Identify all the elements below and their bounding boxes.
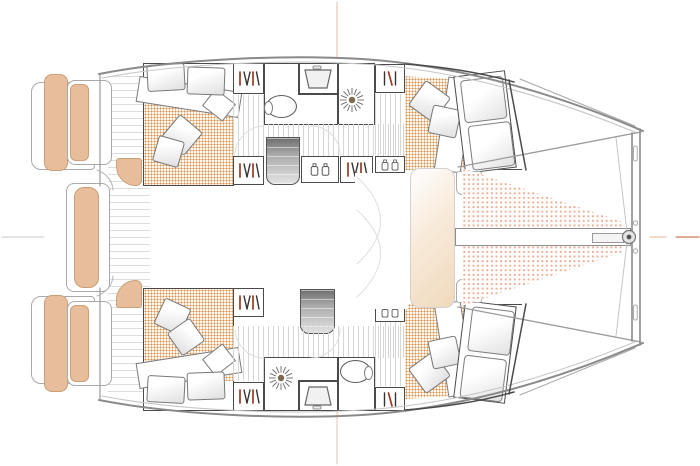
- toilet-icon: [266, 95, 297, 118]
- corridor-floor: [233, 95, 264, 124]
- cockpit-center-bench-cushion: [74, 187, 99, 288]
- clothes-hanger-icon: [382, 70, 399, 87]
- trampoline-panel: [462, 168, 622, 229]
- pillow: [187, 371, 226, 400]
- wardrobe: [233, 156, 264, 185]
- pillow: [146, 375, 185, 404]
- transom-bench-cushion: [44, 74, 68, 171]
- toiletry-jar-icon: [321, 163, 330, 176]
- head-wall: [298, 380, 300, 411]
- transom-bench-cushion: [70, 305, 89, 382]
- wardrobe: [233, 288, 264, 317]
- clothes-hanger-icon: [237, 70, 261, 87]
- toilet-cistern: [364, 366, 373, 380]
- head-wall: [337, 357, 339, 411]
- companionway-steps: [266, 137, 300, 185]
- head-wall: [298, 93, 338, 95]
- berth-cushion: [459, 355, 507, 403]
- corridor-floor: [233, 352, 264, 381]
- berth-cushion: [467, 306, 515, 356]
- toilet-icon: [340, 360, 371, 383]
- catamaran-deck-plan: [0, 0, 700, 466]
- toiletry-jar-icon: [310, 163, 319, 176]
- toilet-cistern: [264, 101, 273, 115]
- clothes-hanger-icon: [382, 391, 399, 408]
- sink-basin-icon: [301, 65, 335, 92]
- locker: [301, 156, 339, 183]
- corridor-floor: [375, 322, 405, 386]
- shower-drain-rose-icon: [335, 83, 369, 117]
- head-wall: [298, 380, 338, 382]
- bowsprit-slider: [592, 233, 624, 243]
- clothes-hanger-icon: [237, 162, 261, 179]
- pillow: [146, 63, 185, 92]
- shower-drain-rose-icon: [264, 361, 298, 395]
- clothes-hanger-icon: [237, 294, 261, 311]
- head-wall: [298, 63, 300, 94]
- pillow: [187, 66, 226, 95]
- transom-bench-cushion: [44, 295, 68, 392]
- wardrobe: [233, 63, 264, 94]
- bowsprit-beam: [455, 228, 631, 246]
- wardrobe: [375, 387, 405, 411]
- clothes-hanger-icon: [237, 388, 261, 405]
- forward-lounge-panel: [410, 168, 455, 308]
- trampoline-panel: [462, 245, 622, 306]
- sink-basin-icon: [301, 383, 335, 410]
- toiletry-jar-icon: [391, 159, 399, 171]
- corridor-floor: [375, 94, 405, 155]
- foredeck-walkway: [355, 173, 408, 309]
- berth-cushion: [467, 121, 515, 171]
- toiletry-jar-icon: [381, 159, 389, 171]
- transom-bench-cushion: [70, 84, 89, 161]
- berth-cushion: [460, 76, 508, 124]
- wardrobe: [233, 382, 264, 411]
- locker: [375, 156, 405, 173]
- wardrobe: [375, 64, 405, 93]
